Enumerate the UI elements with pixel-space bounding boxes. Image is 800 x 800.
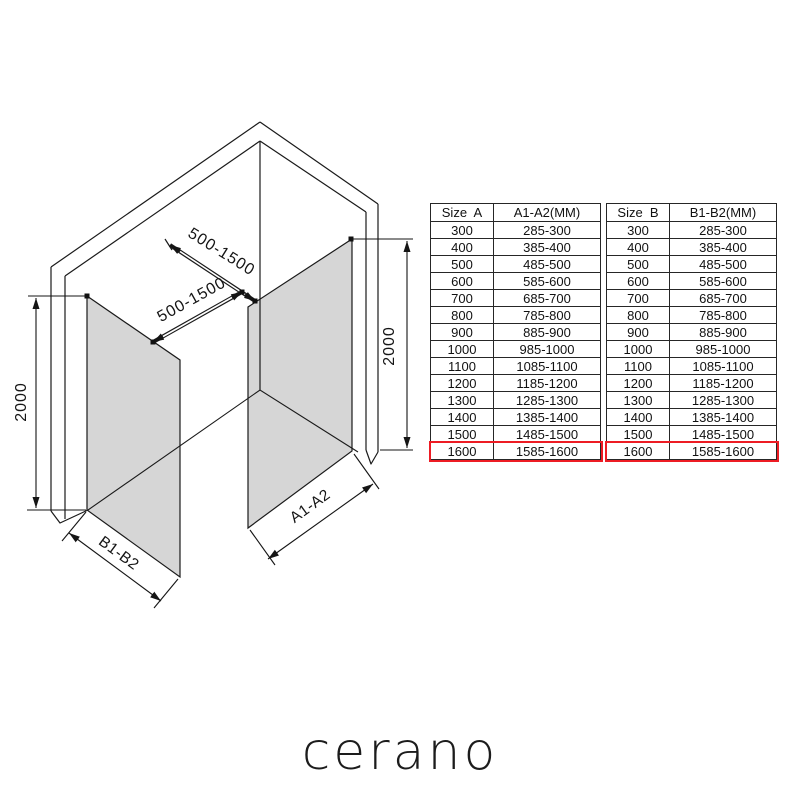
table-cell: 985-1000 <box>670 341 777 358</box>
table-cell: 1185-1200 <box>494 375 601 392</box>
dimension-height-left <box>27 296 86 510</box>
table-row: 600585-600 <box>607 273 777 290</box>
table-cell: 900 <box>431 324 494 341</box>
table-row: 700685-700 <box>607 290 777 307</box>
table-cell: 785-800 <box>670 307 777 324</box>
table-cell: 685-700 <box>494 290 601 307</box>
column-header: Size A <box>431 204 494 222</box>
table-cell: 1585-1600 <box>670 443 777 460</box>
table-cell: 700 <box>431 290 494 307</box>
table-cell: 385-400 <box>670 239 777 256</box>
table-row: 14001385-1400 <box>431 409 601 426</box>
table-cell: 985-1000 <box>494 341 601 358</box>
table-cell: 1385-1400 <box>670 409 777 426</box>
table-row: 1000985-1000 <box>431 341 601 358</box>
table-row: 11001085-1100 <box>431 358 601 375</box>
table-cell: 285-300 <box>494 222 601 239</box>
size-table-b: Size BB1-B2(MM)300285-300400385-40050048… <box>606 203 777 460</box>
table-row: 1000985-1000 <box>607 341 777 358</box>
table-row: 13001285-1300 <box>607 392 777 409</box>
column-header: A1-A2(MM) <box>494 204 601 222</box>
table-row: 400385-400 <box>607 239 777 256</box>
table-cell: 685-700 <box>670 290 777 307</box>
table-cell: 500 <box>431 256 494 273</box>
table-cell: 785-800 <box>494 307 601 324</box>
table-row: 800785-800 <box>431 307 601 324</box>
table-cell: 1300 <box>607 392 670 409</box>
table-cell: 585-600 <box>494 273 601 290</box>
table-cell: 800 <box>431 307 494 324</box>
table-cell: 1585-1600 <box>494 443 601 460</box>
table-cell: 700 <box>607 290 670 307</box>
table-cell: 1200 <box>607 375 670 392</box>
dim-label-bar-top: 500-1500 <box>185 225 258 279</box>
table-cell: 1500 <box>431 426 494 443</box>
brand-logo: cerano <box>0 722 800 782</box>
table-cell: 1000 <box>431 341 494 358</box>
table-cell: 1485-1500 <box>494 426 601 443</box>
table-cell: 1285-1300 <box>494 392 601 409</box>
table-row: 800785-800 <box>607 307 777 324</box>
table-cell: 1085-1100 <box>670 358 777 375</box>
glass-panel-b <box>87 296 180 577</box>
table-cell: 885-900 <box>494 324 601 341</box>
table-row: 14001385-1400 <box>607 409 777 426</box>
table-cell: 1300 <box>431 392 494 409</box>
table-cell: 600 <box>607 273 670 290</box>
column-header: B1-B2(MM) <box>670 204 777 222</box>
table-cell: 1185-1200 <box>670 375 777 392</box>
table-row: 300285-300 <box>607 222 777 239</box>
table-cell: 600 <box>431 273 494 290</box>
table-cell: 1200 <box>431 375 494 392</box>
table-cell: 1085-1100 <box>494 358 601 375</box>
table-cell: 1400 <box>431 409 494 426</box>
table-cell: 300 <box>607 222 670 239</box>
glass-panel-a <box>248 239 352 528</box>
table-cell: 300 <box>431 222 494 239</box>
table-cell: 400 <box>607 239 670 256</box>
table-cell: 1485-1500 <box>670 426 777 443</box>
table-row: 900885-900 <box>607 324 777 341</box>
table-header-row: Size BB1-B2(MM) <box>607 204 777 222</box>
table-cell: 500 <box>607 256 670 273</box>
size-table-a: Size AA1-A2(MM)300285-300400385-40050048… <box>430 203 601 460</box>
table-cell: 1385-1400 <box>494 409 601 426</box>
table-row: 12001185-1200 <box>607 375 777 392</box>
table-cell: 485-500 <box>494 256 601 273</box>
table-row: 300285-300 <box>431 222 601 239</box>
table-row: 400385-400 <box>431 239 601 256</box>
table-cell: 585-600 <box>670 273 777 290</box>
table-row: 900885-900 <box>431 324 601 341</box>
table-cell: 285-300 <box>670 222 777 239</box>
table-row: 11001085-1100 <box>607 358 777 375</box>
table-row: 600585-600 <box>431 273 601 290</box>
table-cell: 385-400 <box>494 239 601 256</box>
table-cell: 1285-1300 <box>670 392 777 409</box>
table-row: 13001285-1300 <box>431 392 601 409</box>
table-cell: 885-900 <box>670 324 777 341</box>
table-cell: 485-500 <box>670 256 777 273</box>
table-row: 700685-700 <box>431 290 601 307</box>
table-cell: 1000 <box>607 341 670 358</box>
dim-label-height-right: 2000 <box>381 326 398 366</box>
table-row-highlighted: 16001585-1600 <box>431 443 601 460</box>
table-row: 500485-500 <box>431 256 601 273</box>
table-row: 15001485-1500 <box>607 426 777 443</box>
table-cell: 1600 <box>607 443 670 460</box>
dim-label-height-left: 2000 <box>13 382 30 422</box>
column-header: Size B <box>607 204 670 222</box>
table-row-highlighted: 16001585-1600 <box>607 443 777 460</box>
table-cell: 1100 <box>431 358 494 375</box>
table-cell: 400 <box>431 239 494 256</box>
table-row: 500485-500 <box>607 256 777 273</box>
page: 2000 2000 500-1500 500-1500 B1-B2 A1-A2 … <box>0 0 800 800</box>
table-row: 15001485-1500 <box>431 426 601 443</box>
table-header-row: Size AA1-A2(MM) <box>431 204 601 222</box>
table-cell: 1600 <box>431 443 494 460</box>
table-cell: 900 <box>607 324 670 341</box>
table-cell: 800 <box>607 307 670 324</box>
table-cell: 1500 <box>607 426 670 443</box>
table-cell: 1100 <box>607 358 670 375</box>
table-row: 12001185-1200 <box>431 375 601 392</box>
table-cell: 1400 <box>607 409 670 426</box>
